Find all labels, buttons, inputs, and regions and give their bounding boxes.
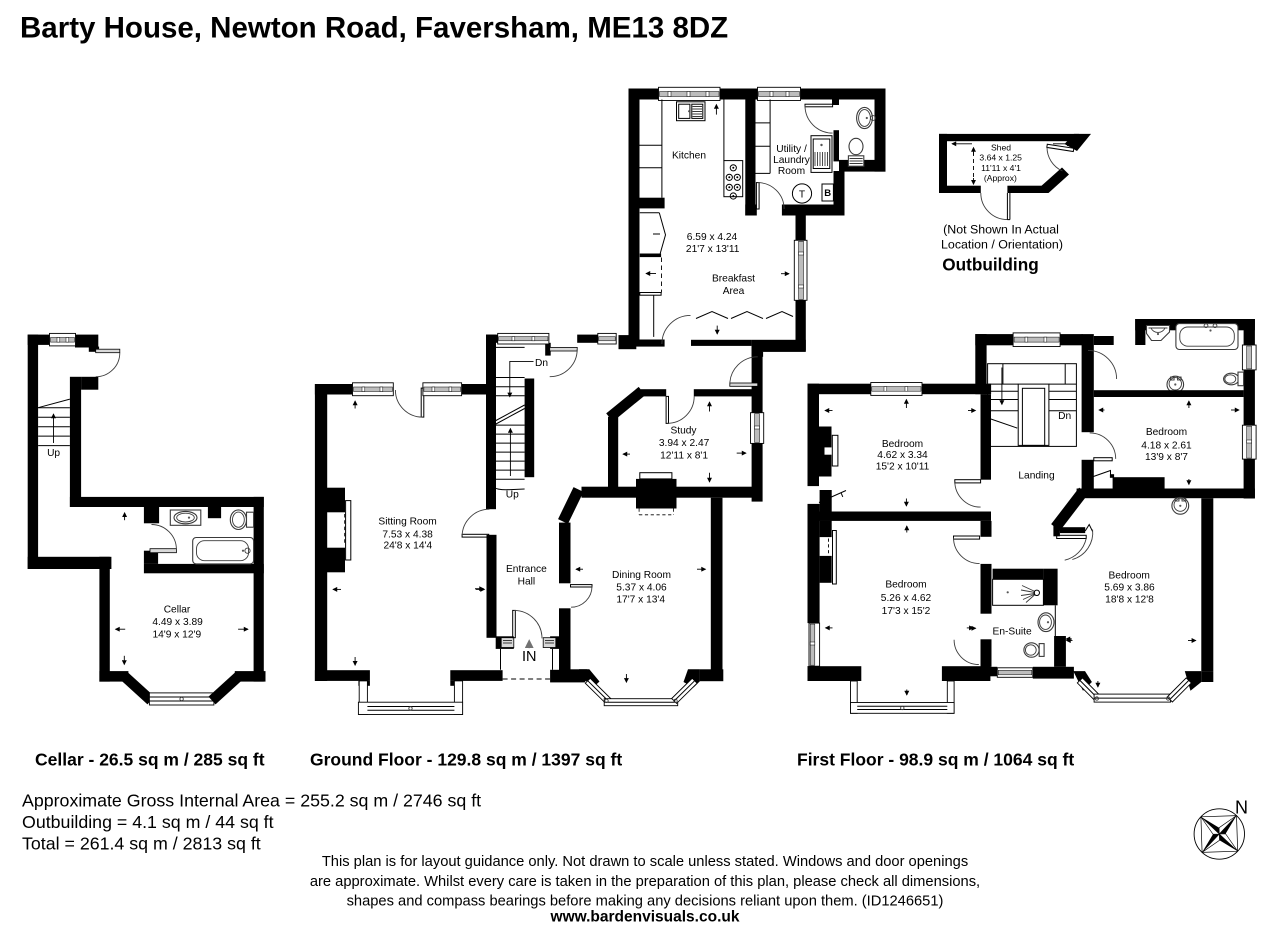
svg-text:Outbuilding = 4.1 sq m / 44 sq: Outbuilding = 4.1 sq m / 44 sq ft xyxy=(22,812,274,832)
svg-text:21'7 x 13'11: 21'7 x 13'11 xyxy=(686,244,740,255)
svg-text:5.69 x 3.86: 5.69 x 3.86 xyxy=(1104,583,1155,594)
svg-text:12'11 x 8'1: 12'11 x 8'1 xyxy=(660,450,708,461)
svg-text:This plan is for layout guidan: This plan is for layout guidance only. N… xyxy=(322,854,968,870)
svg-text:(Not Shown In Actual: (Not Shown In Actual xyxy=(943,223,1059,237)
svg-text:Approximate Gross Internal Are: Approximate Gross Internal Area = 255.2 … xyxy=(22,791,481,811)
svg-text:(Approx): (Approx) xyxy=(984,173,1017,183)
svg-text:Room: Room xyxy=(778,166,805,177)
svg-text:4.18 x 2.61: 4.18 x 2.61 xyxy=(1141,440,1192,451)
svg-text:Total = 261.4 sq m / 2813 sq f: Total = 261.4 sq m / 2813 sq ft xyxy=(22,834,261,854)
svg-text:Landing: Landing xyxy=(1018,471,1055,482)
svg-text:Dn: Dn xyxy=(1058,411,1071,422)
svg-text:First Floor - 98.9 sq m / 1064: First Floor - 98.9 sq m / 1064 sq ft xyxy=(797,750,1074,770)
svg-text:Dn: Dn xyxy=(535,358,548,369)
svg-text:www.bardenvisuals.co.uk: www.bardenvisuals.co.uk xyxy=(550,909,740,926)
svg-text:5.26 x 4.62: 5.26 x 4.62 xyxy=(881,593,932,604)
svg-text:Kitchen: Kitchen xyxy=(672,151,706,162)
svg-text:3.94 x 2.47: 3.94 x 2.47 xyxy=(659,438,710,449)
svg-text:Up: Up xyxy=(506,490,519,501)
svg-text:7.53 x 4.38: 7.53 x 4.38 xyxy=(382,529,433,540)
svg-text:Bedroom: Bedroom xyxy=(1109,570,1150,581)
svg-text:4.62 x 3.34: 4.62 x 3.34 xyxy=(877,450,928,461)
svg-text:Cellar: Cellar xyxy=(164,605,191,616)
svg-text:Outbuilding: Outbuilding xyxy=(942,255,1038,275)
svg-text:Laundry: Laundry xyxy=(773,155,811,166)
svg-text:Shed: Shed xyxy=(991,142,1011,152)
svg-text:Ground Floor - 129.8 sq m / 13: Ground Floor - 129.8 sq m / 1397 sq ft xyxy=(310,750,622,770)
svg-text:Bedroom: Bedroom xyxy=(1146,427,1187,438)
svg-text:Breakfast: Breakfast xyxy=(712,274,755,285)
svg-text:18'8 x 12'8: 18'8 x 12'8 xyxy=(1105,595,1154,606)
svg-text:Dining Room: Dining Room xyxy=(612,570,671,581)
svg-text:IN: IN xyxy=(522,649,537,665)
svg-text:Study: Study xyxy=(670,426,697,437)
svg-text:17'3 x 15'2: 17'3 x 15'2 xyxy=(882,606,931,617)
svg-text:17'7 x 13'4: 17'7 x 13'4 xyxy=(616,595,665,606)
svg-text:6.59 x 4.24: 6.59 x 4.24 xyxy=(687,232,738,243)
svg-text:11'11 x 4'1: 11'11 x 4'1 xyxy=(981,163,1021,173)
svg-text:Entrance: Entrance xyxy=(506,564,547,575)
svg-text:En-Suite: En-Suite xyxy=(993,627,1032,638)
svg-text:13'9 x 8'7: 13'9 x 8'7 xyxy=(1145,452,1188,463)
svg-text:4.49 x 3.89: 4.49 x 3.89 xyxy=(152,617,203,628)
svg-text:Up: Up xyxy=(47,448,60,459)
svg-text:Hall: Hall xyxy=(518,576,536,587)
svg-text:Sitting Room: Sitting Room xyxy=(378,517,436,528)
svg-text:5.37 x 4.06: 5.37 x 4.06 xyxy=(616,582,667,593)
svg-text:are approximate. Whilst every: are approximate. Whilst every care is ta… xyxy=(310,874,980,890)
svg-text:24'8 x 14'4: 24'8 x 14'4 xyxy=(383,540,432,551)
svg-text:N: N xyxy=(1235,798,1248,818)
svg-text:Utility /: Utility / xyxy=(776,144,807,155)
svg-text:shapes and compass bearings be: shapes and compass bearings before makin… xyxy=(347,894,944,910)
svg-text:T: T xyxy=(799,190,805,201)
svg-text:Bedroom: Bedroom xyxy=(885,580,926,591)
svg-text:Barty House, Newton Road, Fave: Barty House, Newton Road, Faversham, ME1… xyxy=(20,12,728,45)
svg-text:Bedroom: Bedroom xyxy=(882,439,923,450)
svg-text:Location / Orientation): Location / Orientation) xyxy=(941,237,1063,251)
svg-text:3.64 x 1.25: 3.64 x 1.25 xyxy=(979,153,1022,163)
svg-text:Area: Area xyxy=(723,286,745,297)
svg-text:B: B xyxy=(824,188,831,199)
svg-text:Cellar - 26.5 sq m / 285 sq ft: Cellar - 26.5 sq m / 285 sq ft xyxy=(35,750,265,770)
svg-text:15'2 x 10'11: 15'2 x 10'11 xyxy=(876,462,930,473)
svg-text:14'9 x 12'9: 14'9 x 12'9 xyxy=(152,629,201,640)
